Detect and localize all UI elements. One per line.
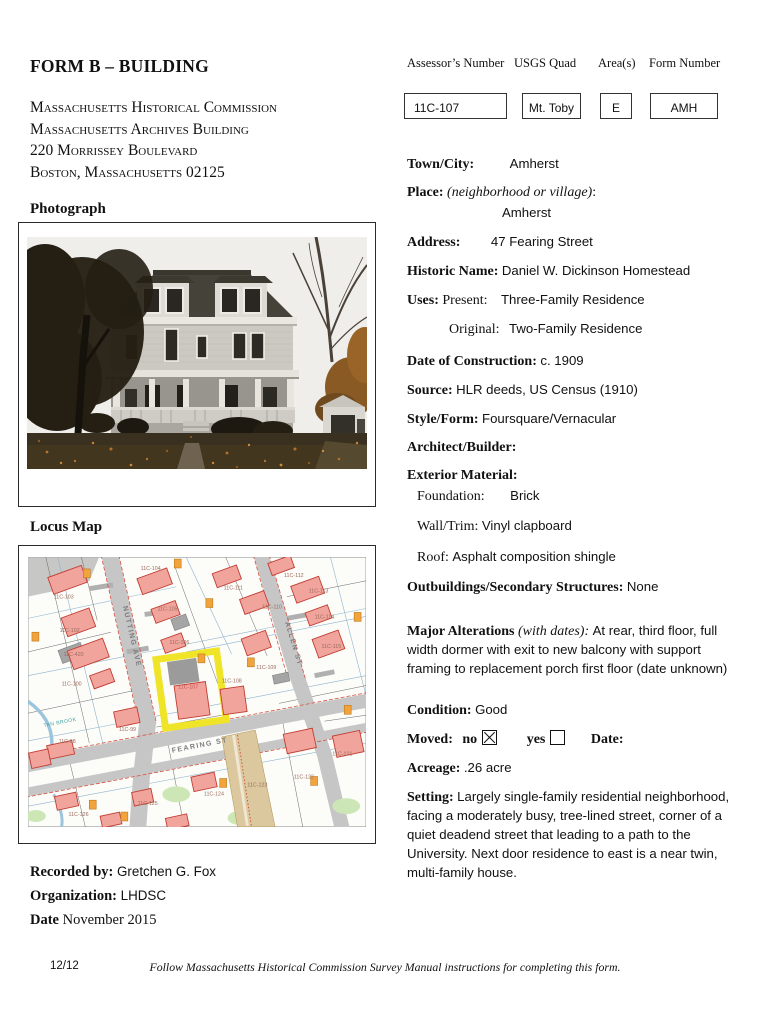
condition-label: Condition: (407, 703, 472, 718)
place-hint: (neighborhood or village) (447, 185, 592, 200)
acreage-row: Acreage: .26 acre (407, 759, 747, 777)
wall-trim-label: Wall/Trim: (417, 519, 478, 534)
organization-label: Organization: (30, 888, 117, 904)
style-form-value: Foursquare/Vernacular (482, 411, 616, 426)
assessors-number-label: Assessor’s Number (407, 56, 504, 71)
historic-name-value: Daniel W. Dickinson Homestead (502, 263, 690, 278)
historic-name-label: Historic Name: (407, 264, 498, 279)
setting-value: Largely single-family residential neighb… (407, 789, 729, 880)
parcel-label: 11C-113 (309, 589, 329, 595)
organization-value: LHDSC (121, 888, 166, 903)
parcel-label: 11C-122 (294, 774, 314, 780)
condition-row: Condition: Good (407, 701, 747, 719)
parcel-label: 11C-98 (59, 739, 76, 745)
parcel-label: 11C-106 (169, 640, 189, 646)
place-row: Place: (neighborhood or village): (407, 184, 747, 201)
building-photo-illustration (27, 237, 367, 469)
town-city-label: Town/City: (407, 157, 474, 172)
uses-original-row: Original: Two-Family Residence (407, 320, 747, 338)
agency-address-block: Massachusetts Historical Commission Mass… (30, 97, 277, 183)
parcel-label: 11C-102 (60, 628, 80, 634)
parcel-label: 11C-112 (284, 573, 304, 579)
address-value: 47 Fearing Street (491, 234, 593, 249)
parcel-label: 11C-114 (315, 614, 335, 620)
construction-label: Date of Construction: (407, 354, 537, 369)
architect-row: Architect/Builder: (407, 439, 747, 456)
source-label: Source: (407, 383, 453, 398)
recorded-by-row: Recorded by: Gretchen G. Fox (30, 860, 216, 884)
parcel-label: 11C-103 (54, 595, 74, 601)
parcel-label: 11C-125 (138, 801, 158, 807)
parcel-label: 11C-111 (224, 586, 243, 592)
present-label: Present: (442, 293, 487, 308)
locus-map-heading: Locus Map (30, 519, 102, 536)
page-title: FORM B – BUILDING (30, 56, 209, 77)
moved-no-checkbox[interactable] (482, 730, 497, 745)
place-label: Place: (407, 185, 444, 200)
form-b-page: FORM B – BUILDING Massachusetts Historic… (0, 0, 770, 1024)
right-column: Assessor’s Number USGS Quad Area(s) Form… (407, 56, 747, 883)
condition-value: Good (475, 702, 507, 717)
setting-paragraph: Setting: Largely single-family residenti… (407, 788, 747, 883)
parcel-label: 11C-420 (64, 652, 84, 658)
foundation-label: Foundation: (417, 489, 485, 504)
moved-no-label: no (462, 732, 477, 747)
original-value: Two-Family Residence (509, 321, 642, 336)
exterior-material-row: Exterior Material: (407, 467, 747, 484)
recorded-by-label: Recorded by: (30, 864, 113, 880)
alterations-hint: (with dates): (518, 624, 589, 639)
locus-map-frame: NUTTING AVE ALLEN ST FEARING ST TAN BROO… (18, 545, 376, 844)
style-form-label: Style/Form: (407, 412, 479, 427)
assessors-number-box: 11C-107 (404, 93, 507, 119)
exterior-material-label: Exterior Material: (407, 468, 518, 483)
historic-name-row: Historic Name: Daniel W. Dickinson Homes… (407, 262, 747, 280)
parcel-label: 11C-121 (332, 752, 352, 758)
parcel-label: 11C-124 (204, 791, 224, 797)
source-row: Source: HLR deeds, US Census (1910) (407, 381, 747, 399)
outbuildings-row: Outbuildings/Secondary Structures: None (407, 578, 747, 596)
areas-box: E (600, 93, 632, 119)
usgs-quad-label: USGS Quad (514, 56, 576, 71)
header-boxes: Assessor’s Number USGS Quad Area(s) Form… (407, 56, 747, 120)
moved-row: Moved: no yes Date: (407, 730, 747, 748)
agency-line: Boston, Massachusetts 02125 (30, 162, 277, 184)
acreage-value: .26 acre (464, 760, 512, 775)
original-label: Original: (449, 322, 500, 337)
form-number-box: AMH (650, 93, 718, 119)
agency-line: 220 Morrissey Boulevard (30, 140, 277, 162)
place-value: Amherst (502, 205, 551, 220)
foundation-row: Foundation: Brick (407, 487, 747, 505)
form-number-label: Form Number (649, 56, 720, 71)
address-label: Address: (407, 235, 460, 250)
construction-value: c. 1909 (540, 353, 583, 368)
moved-label: Moved: (407, 732, 453, 747)
roof-row: Roof: Asphalt composition shingle (407, 548, 747, 566)
foundation-value: Brick (510, 488, 539, 503)
architect-label: Architect/Builder: (407, 440, 516, 455)
alterations-label: Major Alterations (407, 624, 514, 639)
present-value: Three-Family Residence (501, 292, 645, 307)
parcel-label: 11C-108 (222, 679, 242, 685)
parcel-label: 11C-105 (157, 606, 177, 612)
parcel-label: 11C-104 (141, 566, 161, 572)
photograph-heading: Photograph (30, 201, 106, 218)
usgs-quad-box: Mt. Toby (522, 93, 581, 119)
areas-label: Area(s) (598, 56, 635, 71)
alterations-paragraph: Major Alterations (with dates): At rear,… (407, 622, 747, 679)
wall-trim-row: Wall/Trim: Vinyl clapboard (407, 517, 747, 535)
setting-label: Setting: (407, 790, 454, 805)
moved-yes-checkbox[interactable] (550, 730, 565, 745)
source-value: HLR deeds, US Census (1910) (456, 382, 638, 397)
outbuildings-value: None (627, 579, 659, 594)
agency-line: Massachusetts Archives Building (30, 119, 277, 141)
recorded-block: Recorded by: Gretchen G. Fox Organizatio… (30, 860, 216, 932)
outbuildings-label: Outbuildings/Secondary Structures: (407, 580, 623, 595)
footer-instruction: Follow Massachusetts Historical Commissi… (0, 960, 770, 975)
uses-present-row: Uses: Present: Three-Family Residence (407, 291, 747, 309)
date-label: Date (30, 912, 59, 928)
parcel-label: 11C-126 (69, 812, 89, 818)
parcel-label-highlighted: 11C-107 (178, 685, 198, 691)
construction-row: Date of Construction: c. 1909 (407, 352, 747, 370)
place-colon: : (592, 185, 596, 200)
address-row: Address: 47 Fearing Street (407, 233, 747, 251)
roof-label: Roof: (417, 550, 449, 565)
parcel-label: 11C-99 (119, 727, 136, 733)
locus-map-illustration: NUTTING AVE ALLEN ST FEARING ST TAN BROO… (28, 557, 366, 827)
style-form-row: Style/Form: Foursquare/Vernacular (407, 410, 747, 428)
place-value-row: Amherst (407, 204, 747, 222)
moved-yes-label: yes (527, 732, 546, 747)
town-city-value: Amherst (510, 156, 559, 171)
uses-label: Uses: (407, 293, 439, 308)
roof-value: Asphalt composition shingle (452, 549, 615, 564)
fields-list: Town/City: Amherst Place: (neighborhood … (407, 155, 747, 883)
town-city-row: Town/City: Amherst (407, 155, 747, 173)
parcel-label: 11C-110 (262, 604, 282, 610)
parcel-label: 11C-123 (247, 782, 267, 788)
wall-trim-value: Vinyl clapboard (482, 518, 572, 533)
parcel-label: 11C-100 (62, 682, 82, 688)
organization-row: Organization: LHDSC (30, 884, 216, 908)
date-row: Date November 2015 (30, 908, 216, 932)
parcel-label: 11C-115 (322, 644, 342, 650)
moved-date-label: Date: (591, 732, 624, 747)
recorded-by-value: Gretchen G. Fox (117, 864, 216, 879)
agency-line: Massachusetts Historical Commission (30, 97, 277, 119)
date-value: November 2015 (63, 912, 157, 928)
parcel-label: 11C-109 (256, 665, 276, 671)
acreage-label: Acreage: (407, 761, 460, 776)
photograph-frame (18, 222, 376, 507)
